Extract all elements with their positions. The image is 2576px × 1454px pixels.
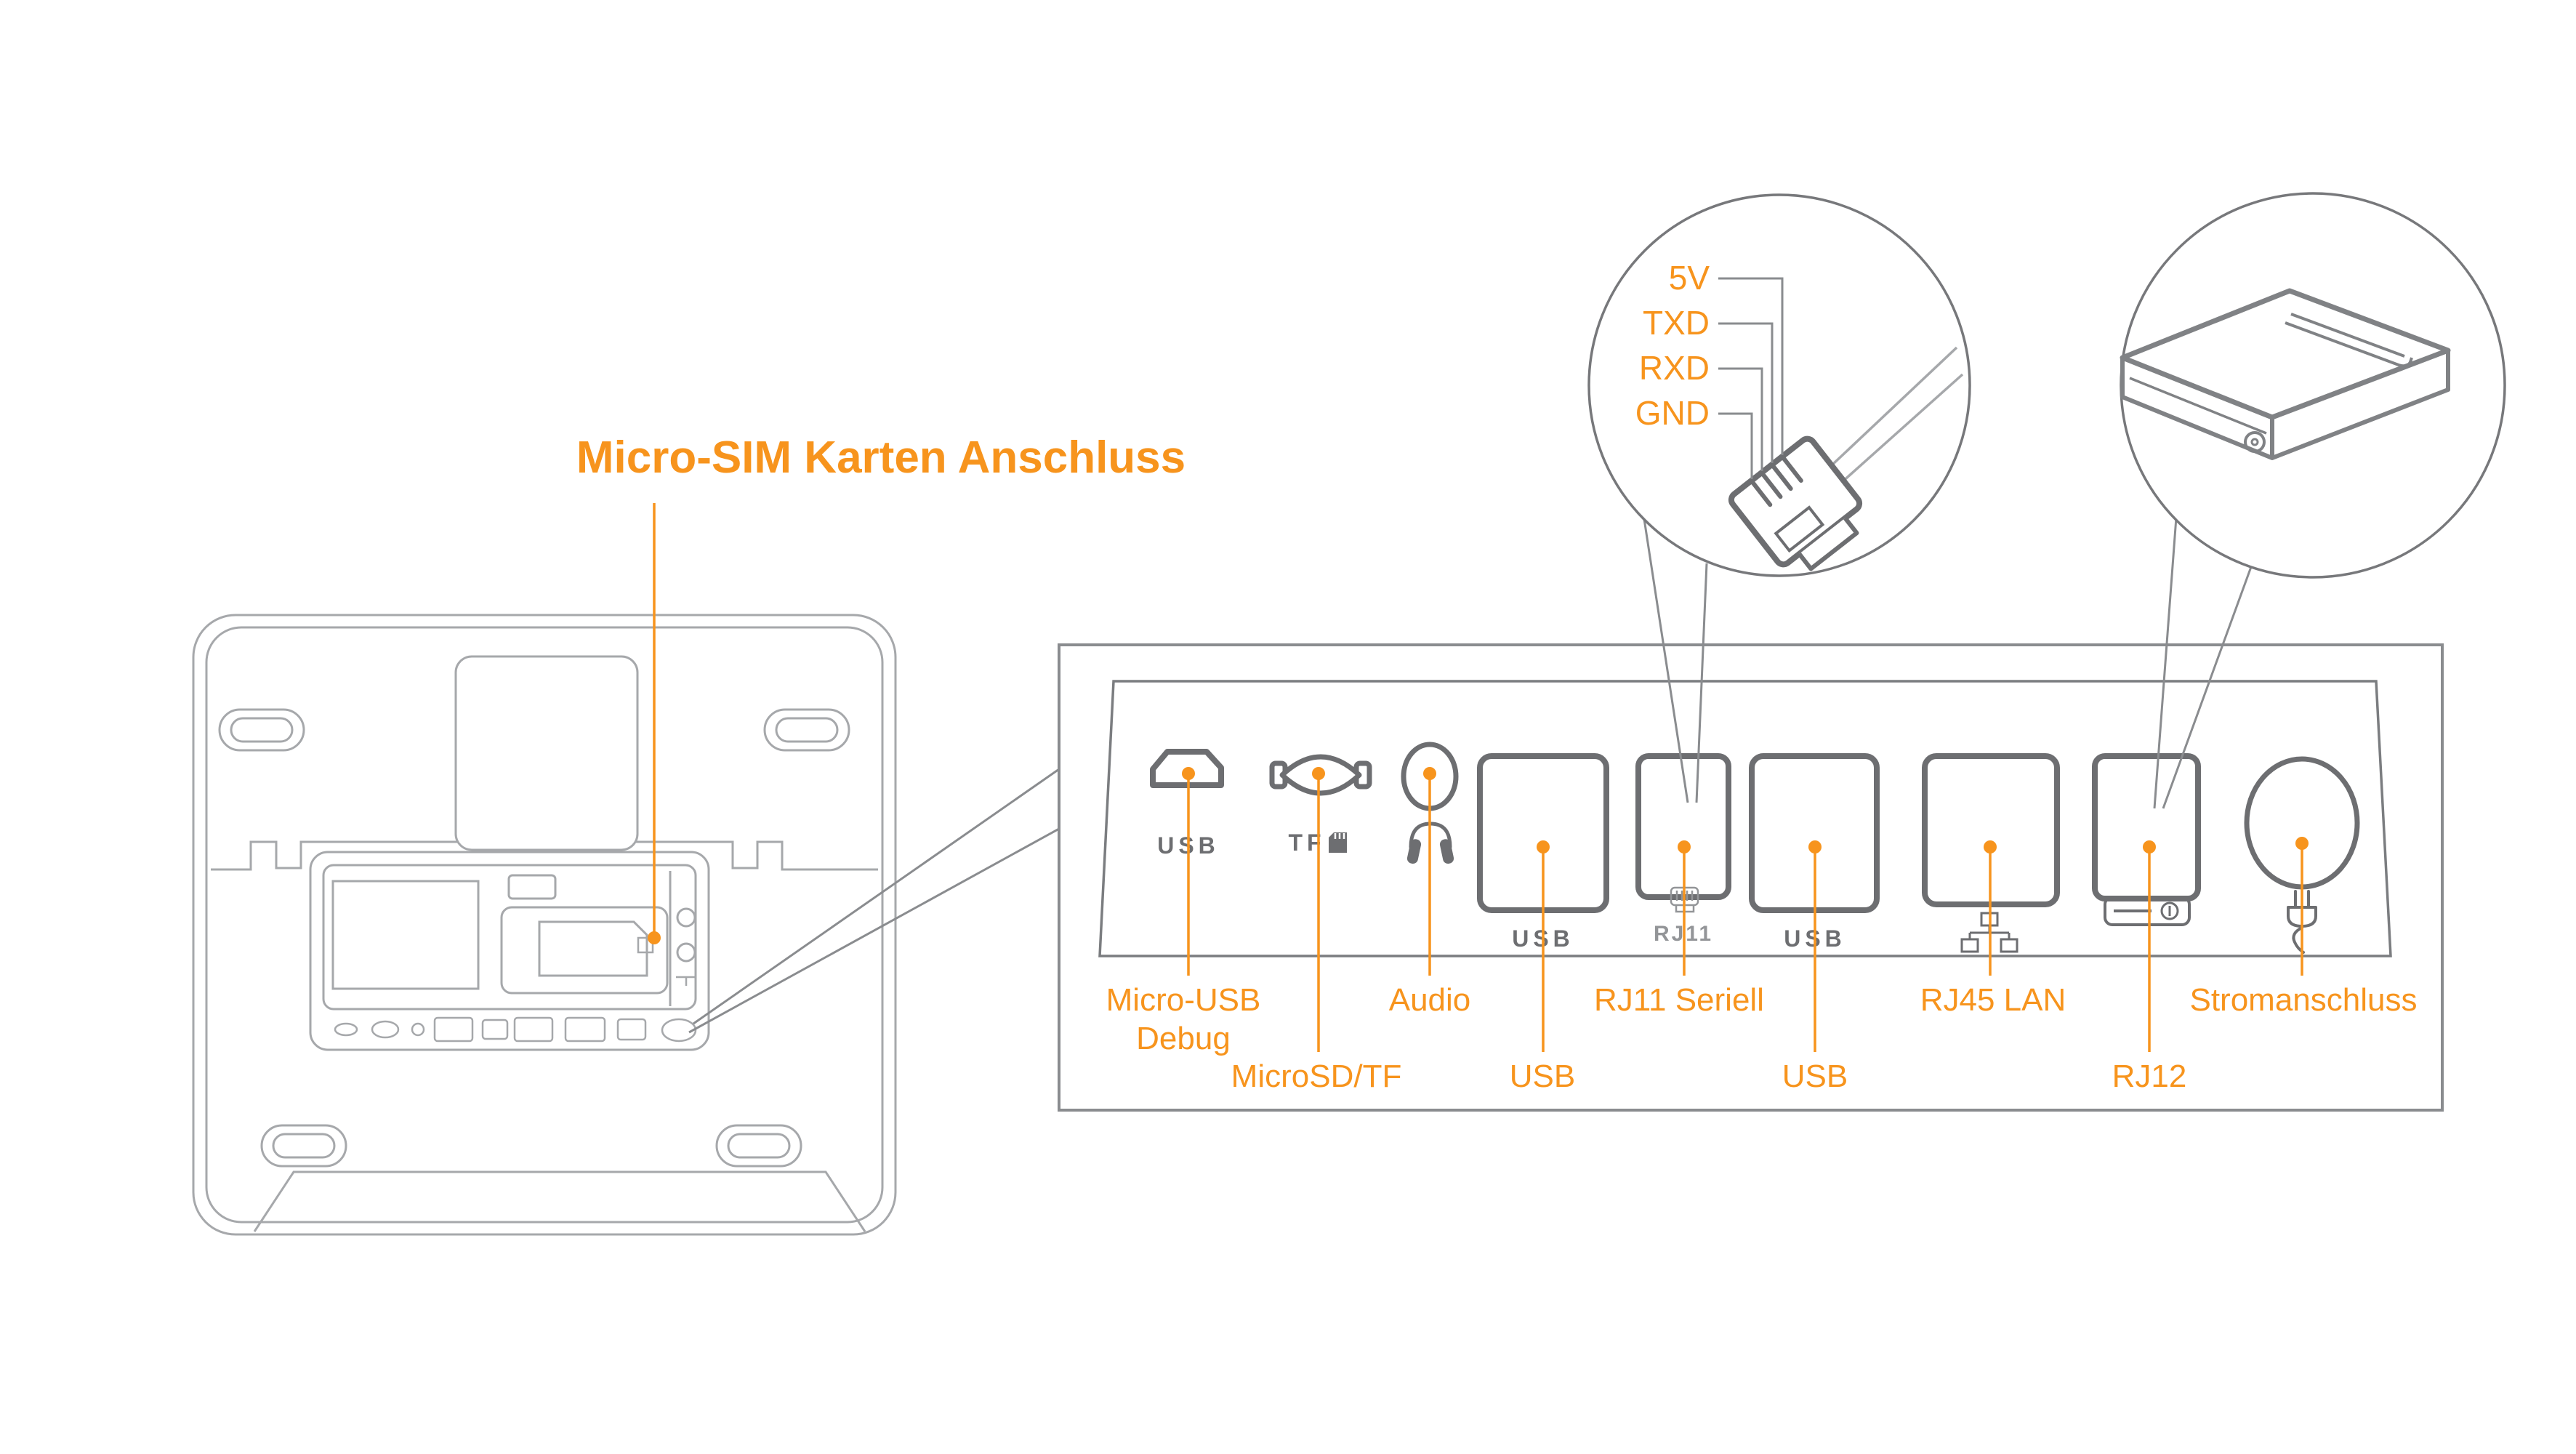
label-micro-usb: Micro-USB bbox=[1106, 982, 1261, 1018]
label-stromanschluss: Stromanschluss bbox=[2189, 982, 2417, 1018]
label-rj11-seriell: RJ11 Seriell bbox=[1594, 982, 1764, 1018]
handset-cradle bbox=[456, 656, 637, 850]
label-micro-usb-2: Debug bbox=[1136, 1021, 1231, 1056]
label-usb2: USB bbox=[1782, 1059, 1848, 1094]
tf-engraving: TF bbox=[1288, 830, 1325, 856]
label-usb1: USB bbox=[1510, 1059, 1575, 1094]
label-microsd-tf: MicroSD/TF bbox=[1231, 1059, 1402, 1094]
page-title: Micro-SIM Karten Anschluss bbox=[576, 433, 1186, 483]
label-rj12: RJ12 bbox=[2112, 1059, 2187, 1094]
device-base-drawing bbox=[193, 615, 895, 1234]
pin-label-txd: TXD bbox=[1643, 304, 1710, 342]
label-rj45-lan: RJ45 LAN bbox=[1920, 982, 2066, 1018]
microsd-card-icon bbox=[1329, 832, 1347, 853]
pin-label-rxd: RXD bbox=[1639, 349, 1710, 387]
rear-panel: USB TF USB RJ11 U bbox=[1059, 645, 2442, 1110]
port-diagram: Micro-SIM Karten Anschluss USB TF USB bbox=[0, 0, 2576, 1454]
adapter-callout bbox=[2121, 193, 2505, 577]
pin-label-gnd: GND bbox=[1635, 394, 1710, 432]
rj12-port-icon bbox=[2095, 756, 2198, 899]
sim-leader-dot bbox=[648, 931, 661, 944]
label-audio: Audio bbox=[1389, 982, 1471, 1018]
pin-label-5v: 5V bbox=[1669, 259, 1710, 297]
diagram-page: Micro-SIM Karten Anschluss USB TF USB bbox=[0, 0, 2576, 1454]
